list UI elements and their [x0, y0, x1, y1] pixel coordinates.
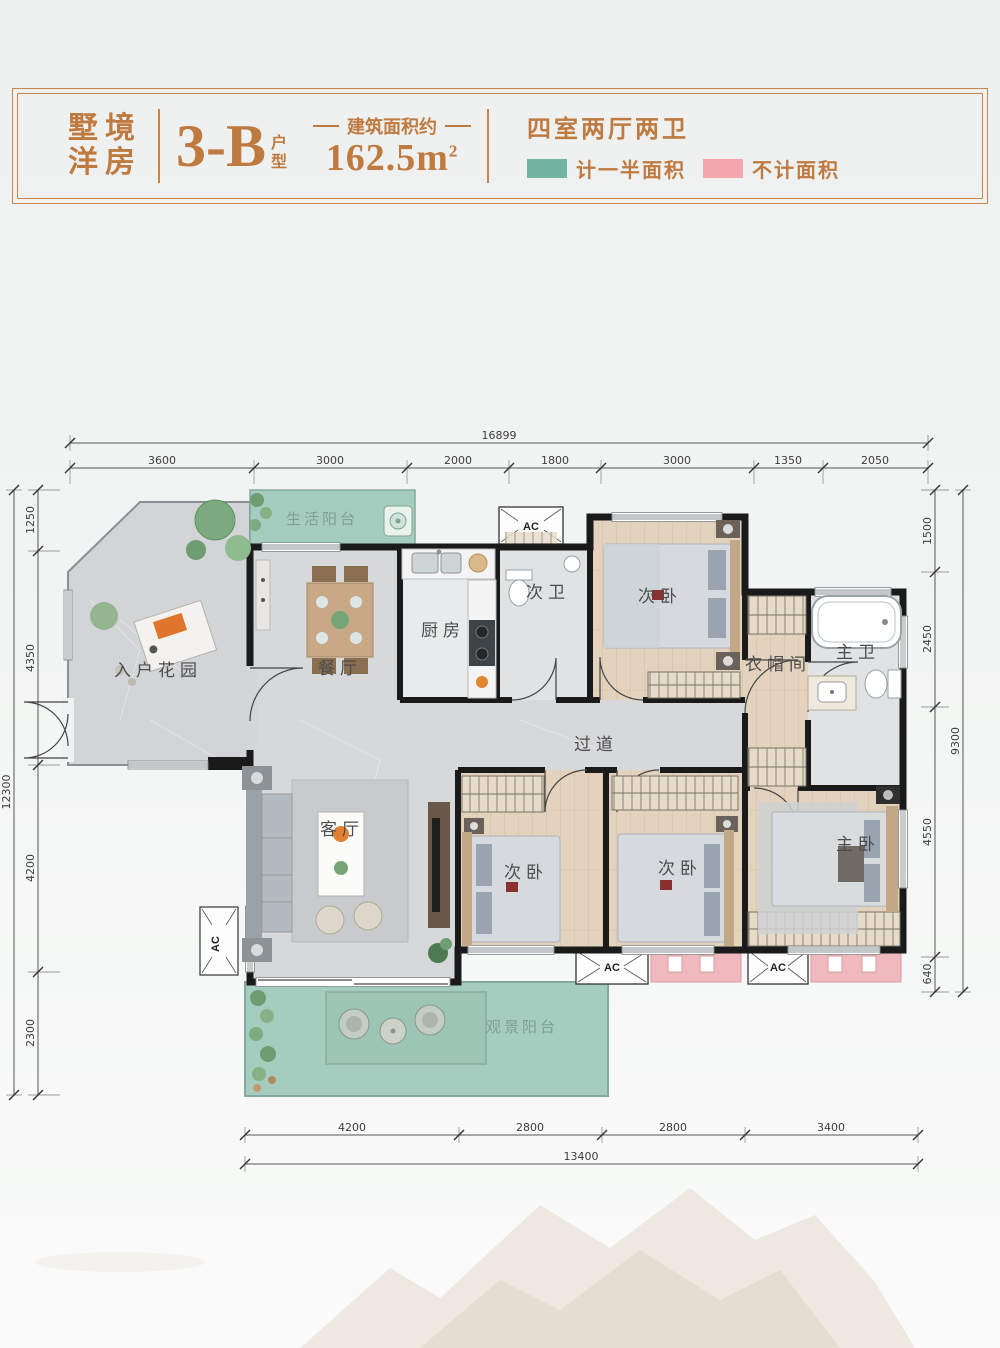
dim-top-total: 16899 — [482, 429, 517, 442]
dim-left-seg: 2300 — [24, 1019, 37, 1047]
dim-top-seg: 1350 — [774, 454, 802, 467]
unit-suffix-line2: 型 — [271, 153, 287, 172]
garden-door-opening — [62, 698, 74, 762]
unit-type: 3-B 户 型 — [176, 116, 287, 176]
ac-label: AC — [604, 962, 620, 974]
unit-code: 3-B — [176, 116, 266, 176]
ac-platform-left: AC — [200, 907, 238, 975]
cutting-board-icon — [469, 554, 487, 572]
dim-left-seg: 1250 — [24, 506, 37, 534]
ac-label: AC — [770, 962, 786, 974]
area-number: 162.5 — [326, 137, 417, 179]
room-label-entry-garden: 入户花园 — [114, 661, 202, 680]
area-sup: 2 — [449, 141, 459, 160]
dim-top-seg: 1800 — [541, 454, 569, 467]
ac-platform-bottom-1: AC — [576, 950, 648, 984]
dim-right-seg: 640 — [921, 964, 934, 985]
room-label-view-balcony: 观景阳台 — [486, 1019, 558, 1036]
dim-bottom-seg: 4200 — [338, 1121, 366, 1134]
header-box: 墅境 洋房 3-B 户 型 建筑面积约 162.5m2 — [12, 88, 988, 204]
ac-label: AC — [523, 521, 539, 533]
bed — [462, 832, 560, 946]
sink-icon — [412, 550, 461, 574]
room-label-cloakroom: 衣帽间 — [745, 655, 811, 674]
room-label-bedroom-left: 次卧 — [504, 863, 548, 882]
sideboard — [256, 560, 270, 630]
vanity-icon — [808, 676, 856, 710]
window-sill — [505, 532, 557, 545]
room-label-corridor: 过道 — [574, 735, 618, 754]
room-label-master-bedroom: 主卧 — [836, 835, 880, 854]
dim-left-seg: 4350 — [24, 644, 37, 672]
room-label-living: 客厅 — [320, 820, 364, 839]
ac-platform-top: AC — [499, 507, 563, 545]
room-label-kitchen: 厨房 — [421, 621, 465, 640]
dim-left-total: 12300 — [0, 775, 13, 810]
header-divider-2 — [487, 109, 489, 183]
dim-left-seg: 4200 — [24, 854, 37, 882]
window — [262, 543, 340, 552]
floorplan-page: 墅境 洋房 3-B 户 型 建筑面积约 162.5m2 — [0, 0, 1000, 1348]
entry-door-leaf — [24, 702, 68, 746]
ac-platform-bottom-2: AC — [748, 950, 808, 984]
area-unit: m — [416, 137, 449, 179]
layout-block: 四室两厅两卫 计一半面积 不计面积 — [527, 109, 848, 183]
toilet-icon — [865, 670, 901, 698]
dim-bottom-seg: 3400 — [817, 1121, 845, 1134]
room-label-bedroom-mid: 次卧 — [658, 859, 702, 878]
dash-right — [445, 125, 471, 127]
header-inner-border: 墅境 洋房 3-B 户 型 建筑面积约 162.5m2 — [17, 93, 983, 199]
area-caption: 建筑面积约 — [347, 113, 437, 139]
area-caption-row: 建筑面积约 — [313, 113, 471, 139]
room-label-master-bath: 主卫 — [836, 643, 880, 662]
dim-top-seg: 2000 — [444, 454, 472, 467]
unit-suffix: 户 型 — [271, 134, 287, 172]
washing-machine-icon — [384, 506, 412, 536]
floorplan-drawing: 16899 3600 3000 2000 1800 3000 1350 2050… — [0, 420, 1000, 1180]
window — [64, 590, 72, 660]
dim-bottom-seg: 2800 — [516, 1121, 544, 1134]
series-line1: 墅境 — [68, 112, 142, 147]
ac-label: AC — [210, 936, 222, 952]
bowl-icon — [476, 676, 488, 688]
layout-title: 四室两厅两卫 — [527, 109, 848, 144]
bedroom-mid-furniture — [618, 816, 738, 946]
area-block: 建筑面积约 162.5m2 — [313, 113, 471, 179]
room-label-second-bath: 次卫 — [526, 583, 570, 602]
unit-suffix-line1: 户 — [271, 134, 287, 153]
bed — [618, 830, 734, 946]
tv-console — [428, 802, 450, 928]
dim-top-seg: 3000 — [663, 454, 691, 467]
entry-door-leaf — [24, 714, 68, 758]
view-balcony — [245, 982, 608, 1096]
legend: 计一半面积 不计面积 — [527, 154, 848, 183]
window — [128, 761, 208, 769]
dim-bottom-total: 13400 — [564, 1150, 599, 1163]
area-value: 162.5m2 — [313, 139, 471, 179]
sliding-door — [256, 978, 450, 987]
window — [612, 513, 722, 522]
dim-right-seg: 4550 — [921, 818, 934, 846]
dim-right-seg: 1500 — [921, 517, 934, 545]
dash-left — [313, 125, 339, 127]
window — [468, 946, 554, 955]
legend-swatch-uncounted — [703, 159, 743, 178]
window — [788, 946, 880, 955]
stove-icon — [469, 620, 495, 666]
window — [899, 810, 908, 888]
legend-label-half-area: 计一半面积 — [576, 154, 686, 183]
balcony-table-icon — [380, 1018, 406, 1044]
dim-right-total: 9300 — [949, 727, 962, 755]
dim-right-seg: 2450 — [921, 625, 934, 653]
room-label-bedroom-top: 次卧 — [638, 587, 682, 606]
dim-top-seg: 3600 — [148, 454, 176, 467]
bathtub-icon — [812, 596, 901, 648]
bed — [772, 806, 898, 912]
series-line2: 洋房 — [68, 146, 142, 181]
sofa — [246, 788, 292, 938]
legend-label-uncounted: 不计面积 — [752, 154, 840, 183]
legend-swatch-half-area — [527, 159, 567, 178]
dim-bottom-seg: 2800 — [659, 1121, 687, 1134]
window — [622, 946, 714, 955]
bedroom-left-furniture — [462, 818, 560, 946]
washbasin-icon — [564, 556, 580, 572]
room-label-dining: 餐厅 — [318, 659, 362, 678]
garden-entry-opening — [244, 666, 257, 750]
header-divider-1 — [158, 109, 160, 183]
dim-top-seg: 3000 — [316, 454, 344, 467]
series-title: 墅境 洋房 — [68, 112, 142, 181]
room-label-life-balcony: 生活阳台 — [286, 511, 358, 528]
dim-top-seg: 2050 — [861, 454, 889, 467]
